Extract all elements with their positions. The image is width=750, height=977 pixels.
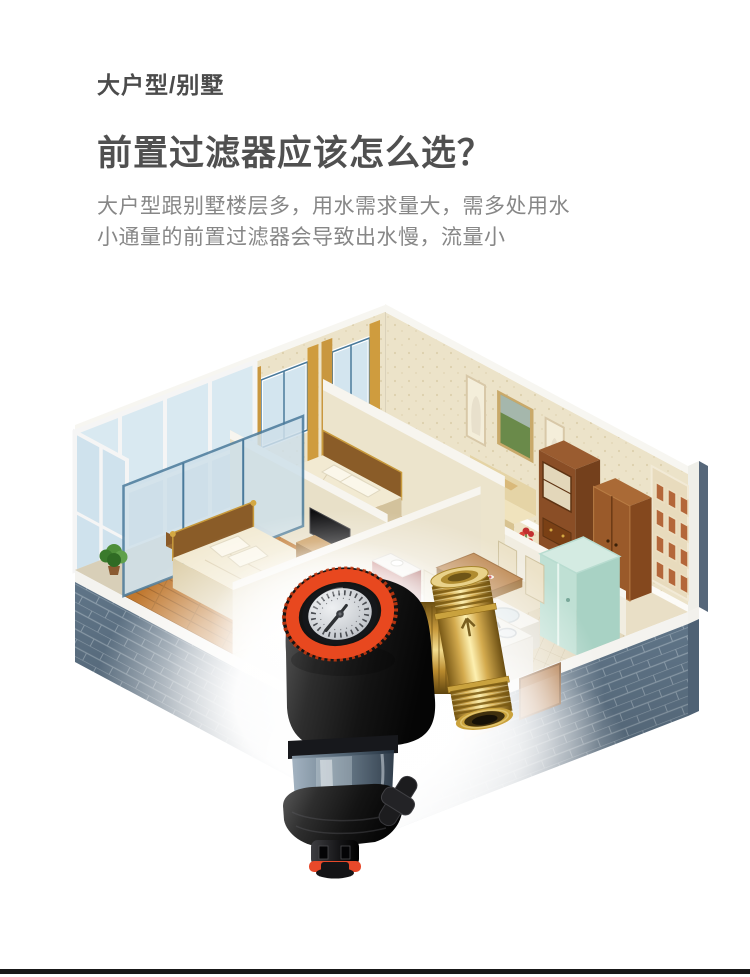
product-detail-page: 大户型/别墅 前置过滤器应该怎么选？ 大户型跟别墅楼层多，用水需求量大，需多处用… xyxy=(0,0,750,977)
wall-niche-1 xyxy=(467,376,485,446)
drain-nozzle xyxy=(309,840,361,879)
apartment-prefilter-illustration xyxy=(0,0,750,977)
decor-panel-wall xyxy=(652,466,688,600)
section-divider xyxy=(0,969,750,974)
curtain xyxy=(308,344,319,470)
